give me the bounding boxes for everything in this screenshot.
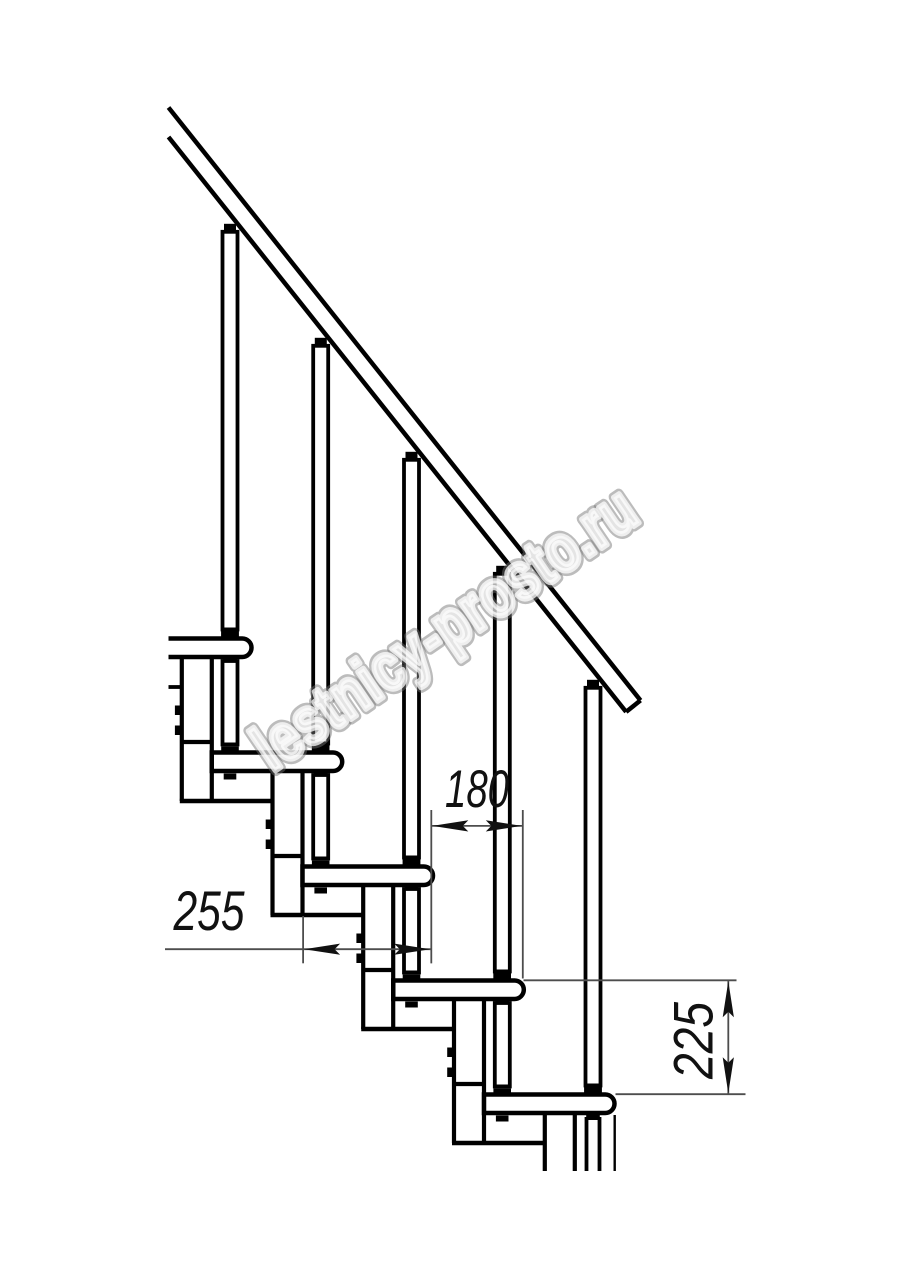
svg-text:255: 255 (173, 879, 245, 942)
svg-text:225: 225 (662, 1001, 725, 1080)
svg-text:180: 180 (445, 760, 509, 819)
